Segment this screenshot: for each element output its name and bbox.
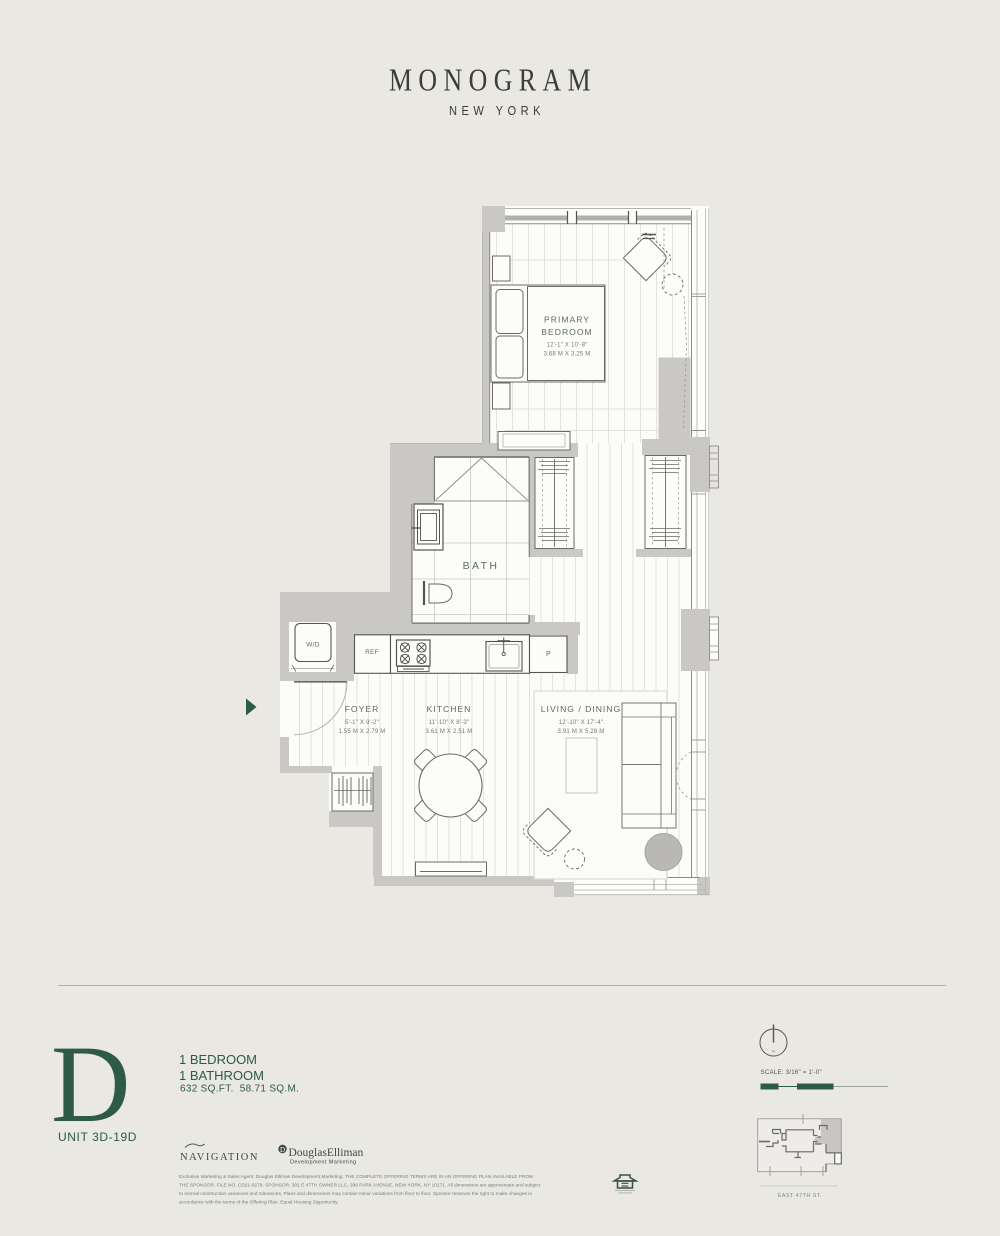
svg-text:PRIMARY: PRIMARY: [544, 315, 590, 325]
svg-text:D: D: [280, 1146, 285, 1154]
svg-text:632 SQ.FT. 58.71 SQ.M.: 632 SQ.FT. 58.71 SQ.M.: [180, 1084, 299, 1095]
svg-text:KITCHEN: KITCHEN: [427, 704, 472, 714]
svg-text:DouglasElliman: DouglasElliman: [289, 1147, 364, 1159]
svg-text:REF: REF: [365, 649, 379, 656]
svg-text:NEW YORK: NEW YORK: [449, 104, 545, 118]
svg-text:EAST 47TH ST.: EAST 47TH ST.: [778, 1193, 822, 1199]
svg-text:5'-1" X 9'-2": 5'-1" X 9'-2": [345, 720, 379, 726]
svg-text:3.61 M X 2.51 M: 3.61 M X 2.51 M: [425, 729, 472, 735]
svg-text:UNIT 3D-19D: UNIT 3D-19D: [58, 1130, 137, 1144]
svg-text:12'-10" X 17'-4": 12'-10" X 17'-4": [559, 720, 603, 726]
svg-text:THE SPONSOR. FILE NO. CD21-027: THE SPONSOR. FILE NO. CD21-0279. SPONSOR…: [179, 1183, 541, 1189]
svg-text:NAVIGATION: NAVIGATION: [180, 1152, 259, 1163]
svg-text:D: D: [51, 1023, 130, 1145]
svg-text:BEDROOM: BEDROOM: [541, 327, 592, 337]
svg-text:11'-10" X 8'-3": 11'-10" X 8'-3": [429, 720, 469, 726]
svg-text:accordance with the terms of t: accordance with the terms of the Offerin…: [179, 1200, 339, 1206]
svg-text:1.55 M X 2.79 M: 1.55 M X 2.79 M: [338, 729, 385, 735]
svg-text:1 BATHROOM: 1 BATHROOM: [179, 1068, 264, 1083]
svg-text:MONOGRAM: MONOGRAM: [389, 62, 597, 98]
svg-text:3.91 M X 5.28 M: 3.91 M X 5.28 M: [557, 729, 604, 735]
svg-text:Development Marketing: Development Marketing: [290, 1160, 356, 1166]
svg-text:SCALE: 3/16" = 1'-0": SCALE: 3/16" = 1'-0": [761, 1069, 822, 1076]
svg-text:W/D: W/D: [306, 642, 320, 649]
svg-text:LIVING / DINING: LIVING / DINING: [541, 704, 621, 714]
svg-text:Exclusive Marketing & Sales Ag: Exclusive Marketing & Sales Agent: Dougl…: [179, 1174, 533, 1180]
svg-text:P: P: [546, 651, 551, 658]
svg-text:1 BEDROOM: 1 BEDROOM: [179, 1052, 257, 1067]
svg-text:BATH: BATH: [463, 560, 500, 572]
svg-text:N: N: [772, 1049, 775, 1054]
svg-text:12'-1" X 10'-8": 12'-1" X 10'-8": [547, 343, 588, 349]
svg-text:FOYER: FOYER: [345, 704, 380, 714]
svg-text:3.68 M X 3.25 M: 3.68 M X 3.25 M: [543, 352, 590, 358]
svg-text:to normal construction varianc: to normal construction variances and tol…: [179, 1191, 532, 1197]
